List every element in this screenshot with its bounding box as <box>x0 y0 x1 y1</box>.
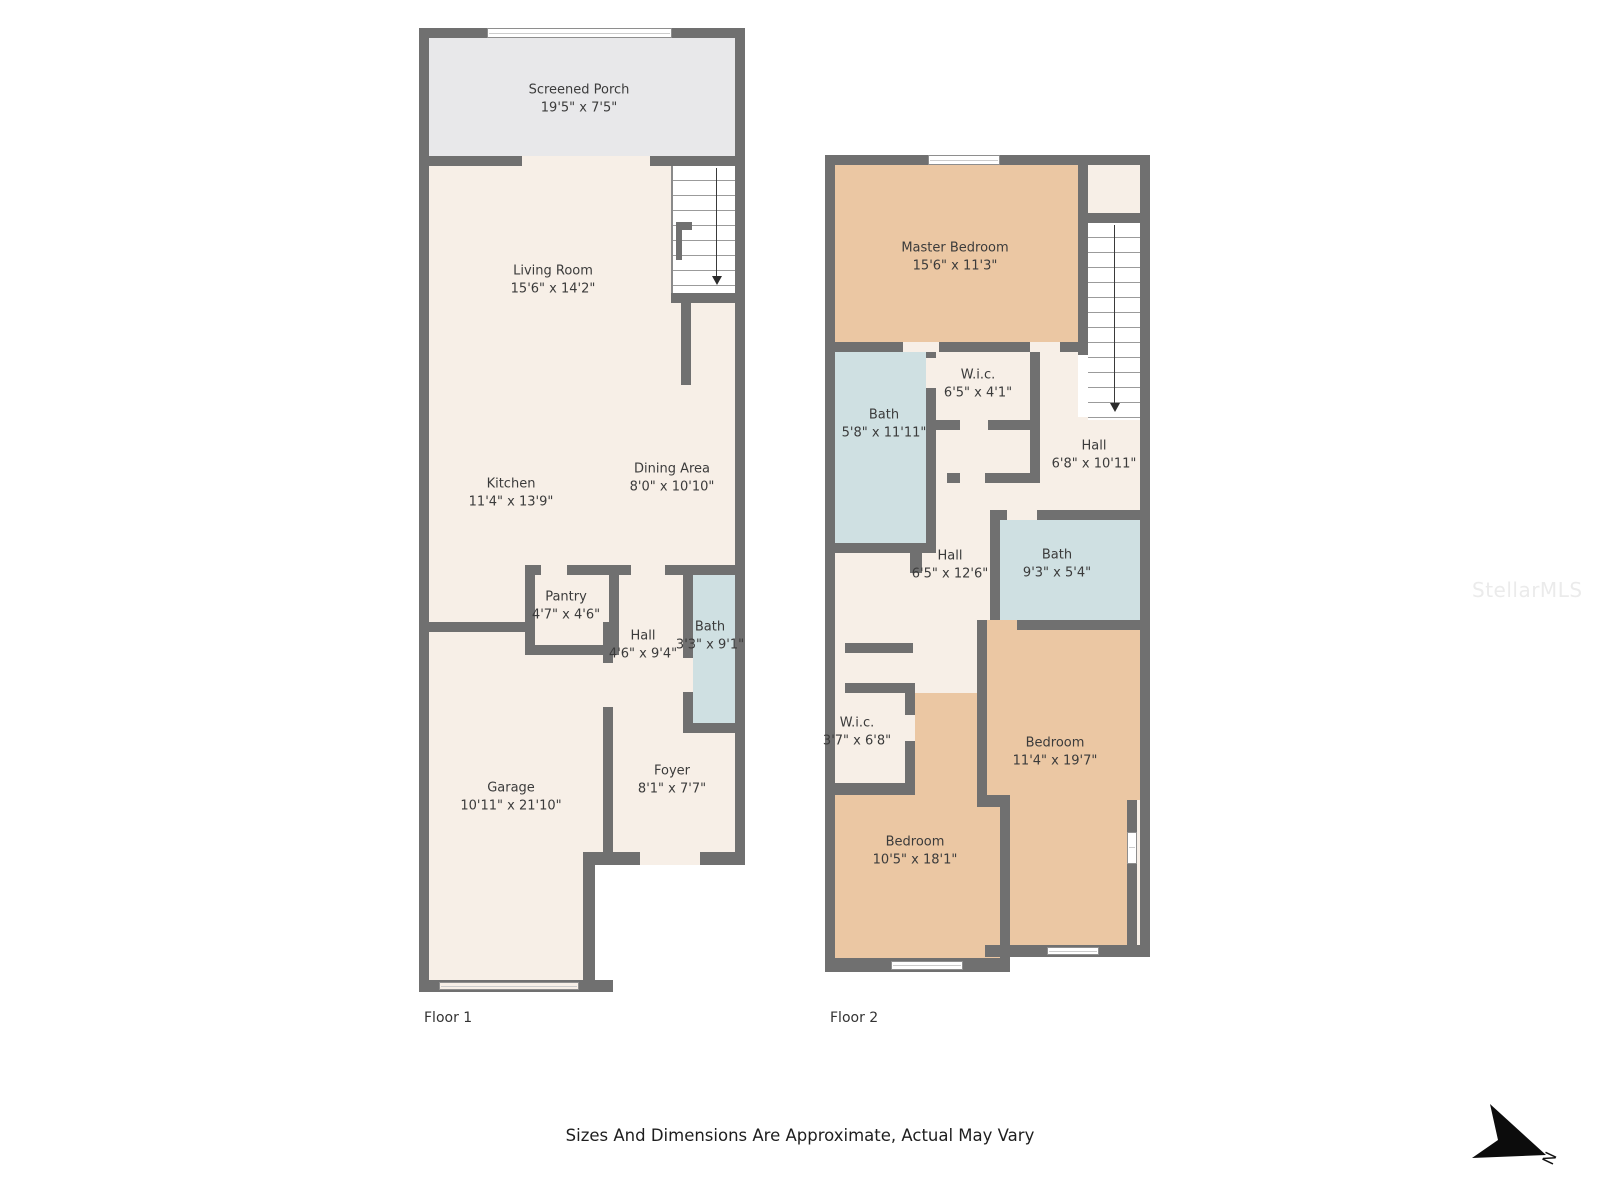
floor-1-label: Floor 1 <box>424 1010 472 1026</box>
door-opening-bath-lower <box>1007 510 1037 520</box>
wall <box>419 28 429 992</box>
room-label-wic-lower: W.i.c.3'7" x 6'8" <box>823 714 891 749</box>
garage-door <box>439 982 579 990</box>
floor-2-plan: Master Bedroom15'6" x 11'3" Bath5'8" x 1… <box>825 155 1150 972</box>
wall <box>990 510 1000 620</box>
wall <box>977 795 1010 807</box>
room-label-hall-f1: Hall4'6" x 9'4" <box>609 627 677 662</box>
room-label-bedroom-left: Bedroom10'5" x 18'1" <box>873 833 958 868</box>
north-arrow-icon: N <box>1468 1100 1578 1175</box>
wall <box>735 28 745 865</box>
door-opening-wic-upper <box>960 420 988 430</box>
room-label-master-bedroom: Master Bedroom15'6" x 11'3" <box>901 239 1008 274</box>
door-opening-bedroom-right <box>987 620 1017 630</box>
wall <box>665 565 683 575</box>
disclaimer-text: Sizes And Dimensions Are Approximate, Ac… <box>0 1126 1600 1145</box>
watermark: StellarMLS <box>1472 578 1583 602</box>
window-master-bedroom <box>928 155 1000 165</box>
wall <box>619 565 631 575</box>
wall <box>936 420 1040 430</box>
wall <box>825 155 835 972</box>
window-porch-screen <box>487 28 672 38</box>
stairs-direction-line <box>716 168 717 276</box>
window-bedroom-right <box>1047 947 1099 955</box>
room-label-bath-upper: Bath5'8" x 11'11" <box>842 406 927 441</box>
window-bedroom-side <box>1127 832 1137 864</box>
wall <box>525 565 619 575</box>
room-label-bedroom-right: Bedroom11'4" x 19'7" <box>1013 734 1098 769</box>
room-label-foyer: Foyer8'1" x 7'7" <box>638 762 706 797</box>
wall <box>429 622 535 632</box>
wall <box>525 645 619 655</box>
room-label-screened-porch: Screened Porch19'5" x 7'5" <box>529 81 630 116</box>
wall <box>683 575 693 733</box>
door-opening-front-door <box>640 852 700 865</box>
room-label-bath-f1: Bath3'3" x 9'1" <box>676 618 744 653</box>
room-label-bath-lower: Bath9'3" x 5'4" <box>1023 546 1091 581</box>
wall <box>835 783 915 795</box>
wall <box>583 865 595 980</box>
door-opening-master-right <box>1030 342 1060 352</box>
stairs-direction-line <box>1114 225 1115 403</box>
wall <box>1030 352 1040 430</box>
wall <box>671 293 735 303</box>
floor-2-label: Floor 2 <box>830 1010 878 1026</box>
wall <box>1140 155 1150 945</box>
wall <box>1127 800 1137 945</box>
room-label-wic-upper: W.i.c.6'5" x 4'1" <box>944 366 1012 401</box>
door-opening-porch <box>522 156 650 166</box>
wall <box>977 630 987 795</box>
wall <box>1078 213 1150 223</box>
wall <box>683 565 745 575</box>
wall <box>683 723 745 733</box>
door-opening-pantry <box>541 565 567 575</box>
room-fill-garage-lower <box>429 865 583 980</box>
wall <box>985 473 1040 483</box>
room-fill-bath-upper <box>835 352 926 543</box>
room-label-living-room: Living Room15'6" x 14'2" <box>511 262 596 297</box>
wall <box>947 473 960 483</box>
stairs-direction-arrow <box>712 276 722 285</box>
room-fill-garage-upper <box>429 622 603 865</box>
door-opening-garage <box>603 663 613 707</box>
floor-1-plan: Screened Porch19'5" x 7'5" Living Room15… <box>419 28 745 992</box>
wall <box>1030 430 1040 473</box>
room-label-dining-area: Dining Area8'0" x 10'10" <box>630 460 715 495</box>
door-opening-bath-upper <box>926 358 936 388</box>
wall <box>681 303 691 385</box>
door-opening-bath1 <box>683 658 693 692</box>
room-fill-bedroom-left <box>835 795 1000 958</box>
door-opening-master-left <box>903 342 939 352</box>
room-label-hall-lower: Hall6'5" x 12'6" <box>912 547 988 582</box>
room-label-kitchen: Kitchen11'4" x 13'9" <box>469 475 554 510</box>
door-opening-wic-lower <box>905 715 915 741</box>
room-label-pantry: Pantry4'7" x 4'6" <box>532 588 600 623</box>
window-bedroom-left <box>891 961 963 970</box>
floorplan-page: { "page": { "disclaimer": "Sizes And Dim… <box>0 0 1600 1200</box>
stair-wall-stub <box>676 222 682 260</box>
room-fill-bedroom-left-entry <box>915 693 977 795</box>
room-fill-bedroom-right-upper <box>987 630 1140 800</box>
wall <box>1000 795 1010 958</box>
wall <box>1078 165 1088 355</box>
stairs-direction-arrow <box>1110 403 1120 412</box>
room-label-hall-upper: Hall6'8" x 10'11" <box>1052 437 1137 472</box>
door-opening-stairs <box>1078 355 1088 417</box>
wall <box>845 643 913 653</box>
room-label-garage: Garage10'11" x 21'10" <box>460 779 561 814</box>
svg-text:N: N <box>1538 1149 1560 1168</box>
